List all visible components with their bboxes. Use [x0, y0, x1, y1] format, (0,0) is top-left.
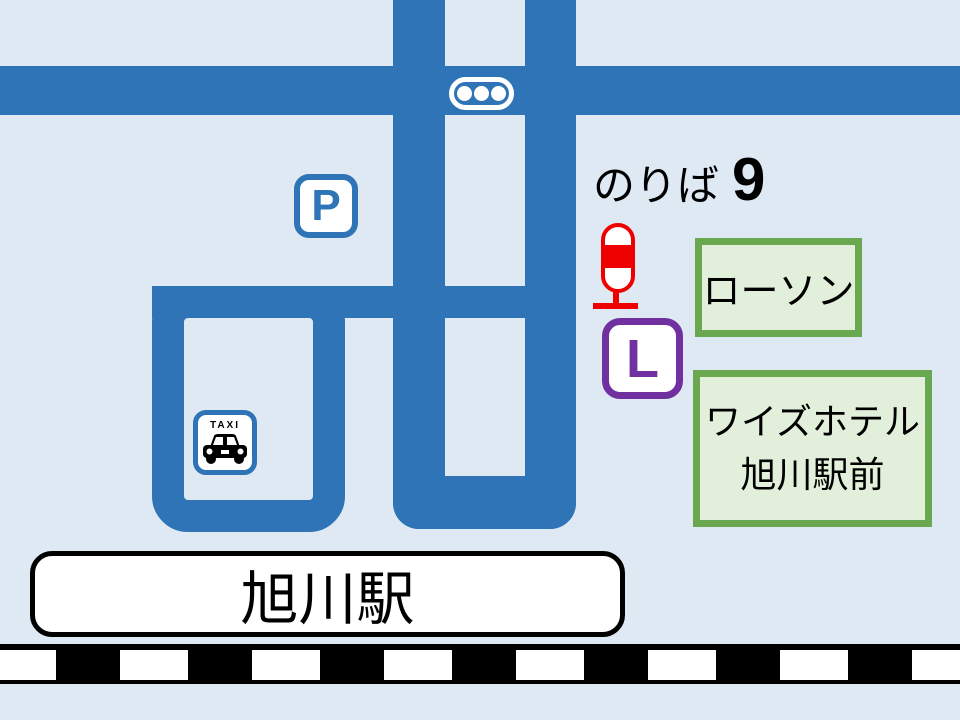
taxi-label: TAXI: [210, 420, 240, 431]
boarding-point-text: のりば: [593, 161, 719, 211]
signal-lamp-icon: [457, 86, 472, 101]
traffic-signal-icon: [449, 77, 514, 110]
hotel-box: ワイズホテル 旭川駅前: [693, 370, 932, 527]
railway-ties-icon: [0, 650, 960, 680]
taxi-car-icon: [201, 431, 249, 465]
busstop-pole-band: [605, 245, 631, 268]
lawson-icon: L: [602, 318, 683, 399]
road-vertical-left: [393, 0, 445, 529]
busstop-pole-base: [593, 303, 638, 309]
signal-lamp-icon: [474, 86, 489, 101]
hotel-label-line1: ワイズホテル: [705, 396, 920, 448]
station-label: 旭川駅: [240, 552, 414, 636]
road-rotary-loop: [152, 286, 345, 532]
busstop-pole-icon: [601, 223, 635, 293]
parking-icon: P: [294, 174, 358, 238]
lawson-letter: L: [626, 328, 659, 390]
lawson-box: ローソン: [695, 238, 862, 337]
station-box: 旭川駅: [30, 551, 625, 637]
parking-letter: P: [311, 181, 340, 231]
boarding-point-label: のりば 9: [593, 150, 765, 211]
boarding-point-number: 9: [732, 150, 765, 210]
signal-lamp-icon: [491, 86, 506, 101]
hotel-label-line2: 旭川駅前: [740, 449, 884, 501]
lawson-label: ローソン: [702, 260, 854, 315]
railway-track: [0, 644, 960, 684]
station-area-map: P TAXI のりば 9 L ローソン ワイズホテル 旭: [0, 0, 960, 720]
road-vertical-right: [525, 0, 576, 529]
road-u-turn-bottom: [393, 476, 576, 529]
taxi-icon: TAXI: [193, 410, 257, 475]
